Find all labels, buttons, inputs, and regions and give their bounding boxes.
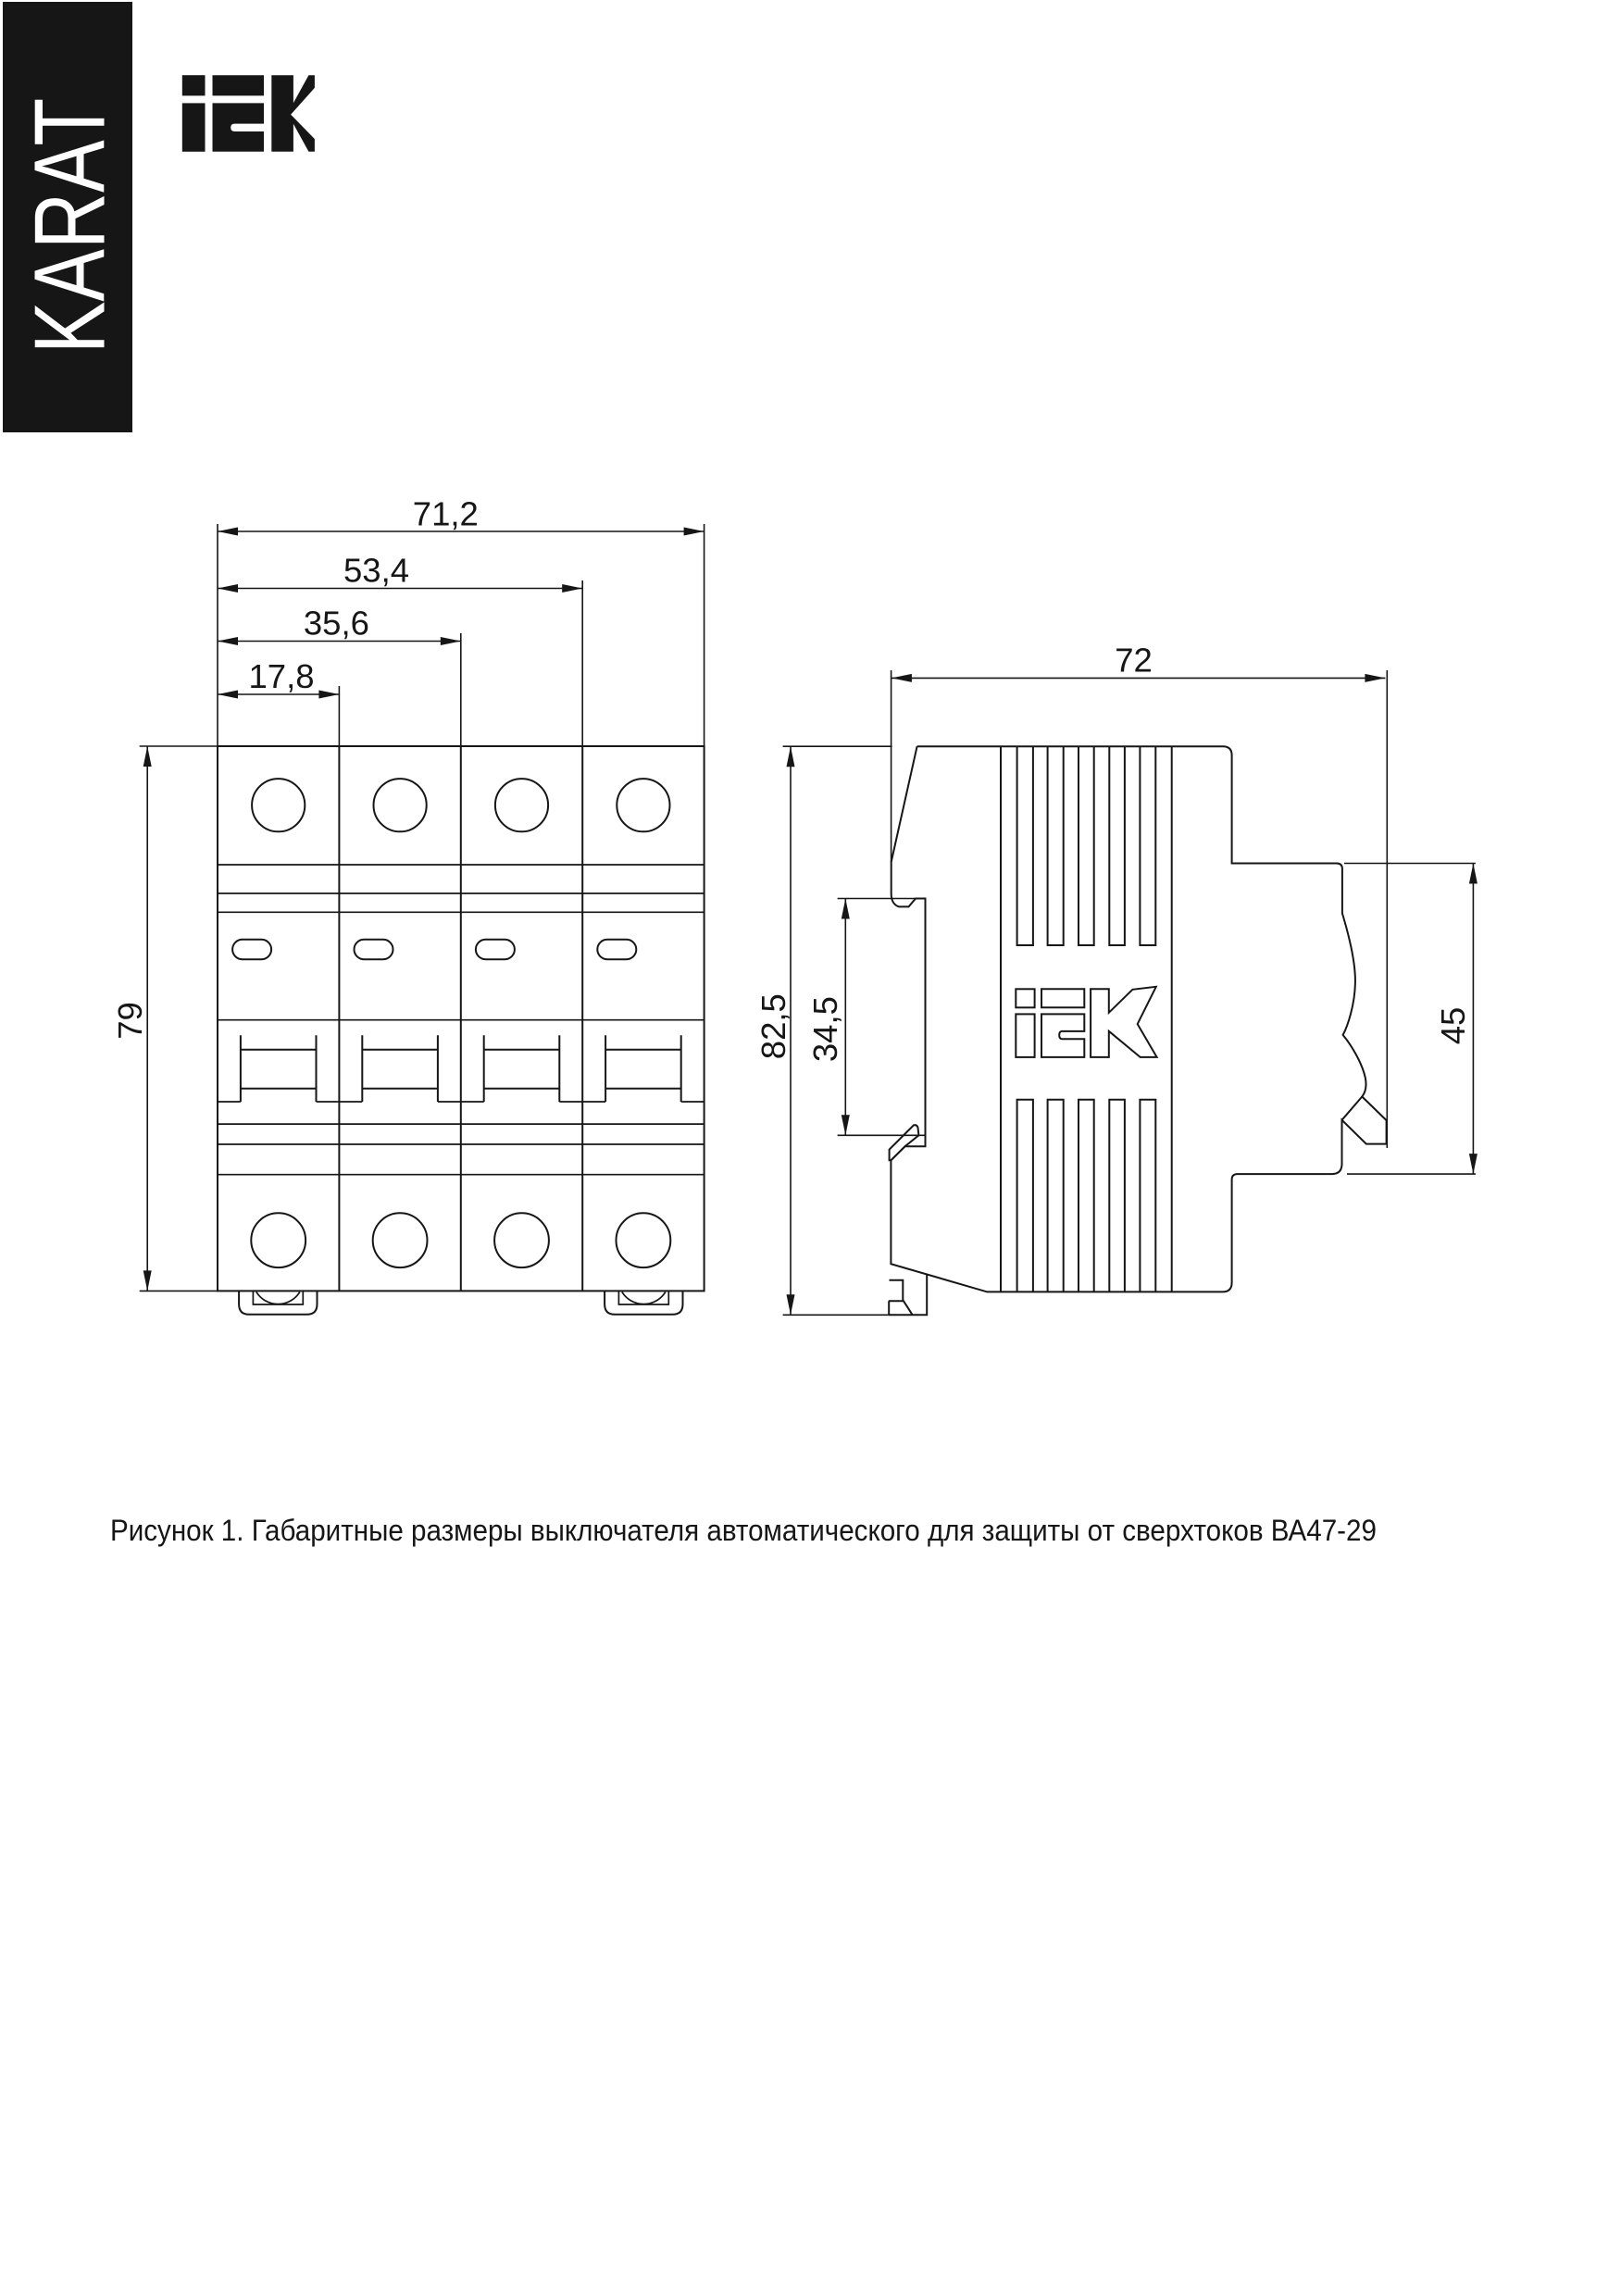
svg-text:34,5: 34,5 — [806, 996, 844, 1062]
svg-text:79: 79 — [111, 1002, 149, 1040]
svg-text:KARAT: KARAT — [13, 98, 126, 354]
svg-text:71,2: 71,2 — [413, 495, 479, 533]
svg-text:Рисунок 1. Габаритные размеры: Рисунок 1. Габаритные размеры выключател… — [110, 1514, 1377, 1548]
svg-text:17,8: 17,8 — [248, 657, 314, 695]
svg-text:72: 72 — [1115, 642, 1153, 680]
svg-text:53,4: 53,4 — [343, 552, 409, 590]
svg-text:45: 45 — [1434, 1007, 1472, 1045]
svg-text:82,5: 82,5 — [754, 993, 792, 1059]
svg-text:35,6: 35,6 — [304, 605, 369, 643]
